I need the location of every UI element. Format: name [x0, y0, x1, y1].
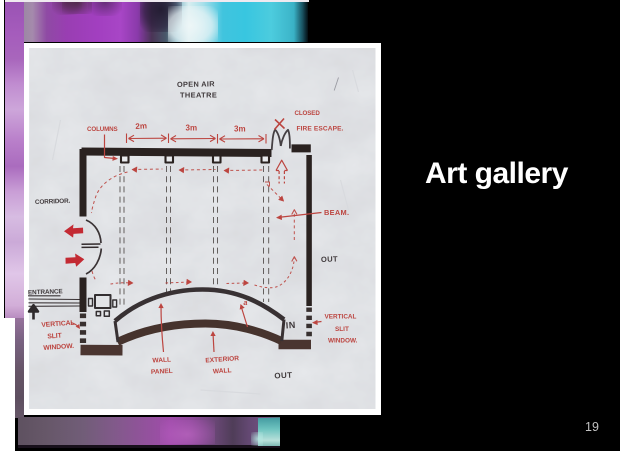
svg-text:3m: 3m	[234, 125, 246, 134]
svg-text:THEATRE: THEATRE	[180, 91, 217, 100]
svg-text:BEAM.: BEAM.	[324, 208, 349, 217]
svg-text:2m: 2m	[135, 121, 147, 131]
svg-text:a: a	[243, 300, 247, 307]
svg-text:PANEL: PANEL	[150, 368, 172, 376]
svg-text:3m: 3m	[185, 124, 197, 133]
svg-text:SLIT: SLIT	[335, 326, 349, 333]
svg-text:OPEN AIR: OPEN AIR	[176, 79, 214, 89]
svg-text:COLUMNS: COLUMNS	[87, 126, 118, 133]
svg-text:CLOSED: CLOSED	[294, 110, 320, 117]
svg-text:CORRIDOR.: CORRIDOR.	[34, 198, 70, 206]
svg-text:OUT: OUT	[274, 371, 293, 381]
svg-text:WALL: WALL	[152, 357, 171, 365]
svg-text:ENTRANCE: ENTRANCE	[27, 288, 63, 296]
svg-text:SLIT: SLIT	[47, 332, 63, 340]
svg-text:IN: IN	[285, 320, 296, 331]
svg-text:VERTICAL: VERTICAL	[324, 314, 356, 321]
svg-text:FIRE ESCAPE.: FIRE ESCAPE.	[296, 126, 343, 133]
svg-text:WALL: WALL	[212, 367, 231, 375]
svg-text:WINDOW.: WINDOW.	[328, 338, 358, 345]
svg-text:OUT: OUT	[320, 254, 337, 264]
